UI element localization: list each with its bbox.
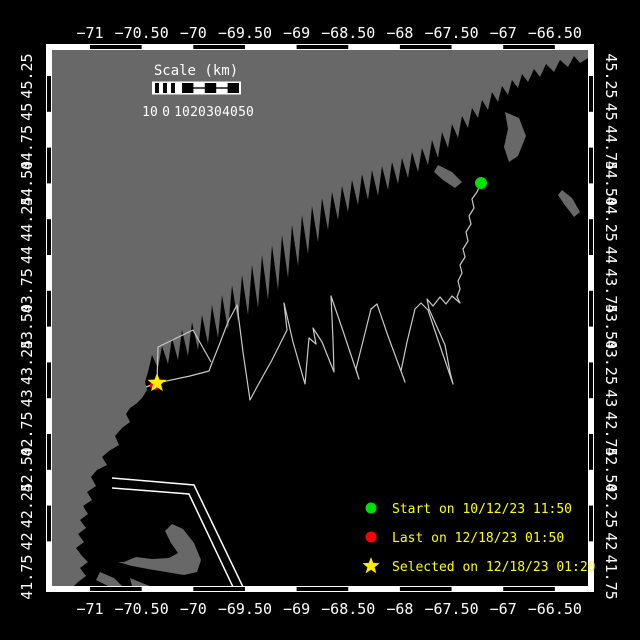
lon-tick-label-top: −68 — [386, 24, 413, 42]
lon-tick-label-bottom: −68 — [386, 600, 413, 618]
frame-dash — [589, 291, 593, 327]
start-position-marker[interactable] — [475, 177, 487, 189]
lat-tick-label-left: 44.25 — [18, 197, 36, 242]
lon-tick-label-bottom: −70.50 — [115, 600, 169, 618]
scale-bar-number: 40 — [222, 105, 238, 120]
frame-dash — [47, 506, 51, 542]
frame-dash — [193, 587, 245, 591]
lat-tick-label-left: 42 — [18, 532, 36, 550]
lat-tick-label-right: 45 — [602, 103, 620, 121]
legend-label: Selected on 12/18/23 01:20 — [392, 560, 596, 575]
lat-tick-label-right: 41.75 — [602, 555, 620, 600]
scale-bar-number: 10 — [174, 105, 190, 120]
lat-tick-label-left: 45.25 — [18, 53, 36, 98]
scale-bar-number: 20 — [190, 105, 206, 120]
lon-tick-label-top: −70 — [180, 24, 207, 42]
lon-tick-label-bottom: −66.50 — [528, 600, 582, 618]
scale-bar-hatch — [163, 83, 167, 93]
frame-dash — [47, 434, 51, 470]
lat-tick-label-right: 45.25 — [602, 53, 620, 98]
frame-dash — [47, 219, 51, 255]
frame-dash — [297, 45, 349, 49]
scale-bar-title: Scale (km) — [154, 63, 238, 79]
lon-tick-label-top: −69 — [283, 24, 310, 42]
scale-bar-number: 50 — [238, 105, 254, 120]
scale-bar-number: 0 — [162, 105, 170, 120]
lon-tick-label-bottom: −68.50 — [321, 600, 375, 618]
legend-label: Start on 10/12/23 11:50 — [392, 502, 572, 517]
lon-tick-label-top: −66.50 — [528, 24, 582, 42]
legend-label: Last on 12/18/23 01:50 — [392, 531, 564, 546]
lon-tick-label-top: −71 — [76, 24, 103, 42]
frame-dash — [47, 291, 51, 327]
lat-tick-label-right: 44 — [602, 246, 620, 264]
frame-dash — [589, 362, 593, 398]
lat-tick-label-left: 45 — [18, 103, 36, 121]
scale-bar-number: 10 — [142, 105, 158, 120]
lon-tick-label-top: −67 — [490, 24, 517, 42]
lat-tick-label-right: 42.25 — [602, 483, 620, 528]
frame-dash — [47, 148, 51, 184]
lon-tick-label-bottom: −69 — [283, 600, 310, 618]
lon-tick-label-top: −69.50 — [218, 24, 272, 42]
frame-dash — [90, 587, 142, 591]
scale-bar-hatch — [171, 83, 175, 93]
lat-tick-label-right: 44.25 — [602, 197, 620, 242]
frame-dash — [589, 76, 593, 112]
frame-dash — [47, 362, 51, 398]
lat-tick-label-left: 42.25 — [18, 483, 36, 528]
lat-tick-label-right: 43.25 — [602, 340, 620, 385]
lat-tick-label-right: 43 — [602, 389, 620, 407]
scale-bar-hatch — [155, 83, 159, 93]
frame-dash — [503, 45, 555, 49]
scale-bar-number: 30 — [206, 105, 222, 120]
frame-dash — [47, 76, 51, 112]
lat-tick-label-left: 43.25 — [18, 340, 36, 385]
tracking-map: −71−71−70.50−70.50−70−70−69.50−69.50−69−… — [0, 0, 640, 640]
frame-dash — [589, 219, 593, 255]
legend-start-icon — [366, 503, 377, 514]
lat-tick-label-left: 44 — [18, 246, 36, 264]
frame-dash — [90, 45, 142, 49]
scale-bar-midline — [182, 87, 239, 88]
frame-dash — [297, 587, 349, 591]
frame-dash — [193, 45, 245, 49]
frame-dash — [589, 148, 593, 184]
legend-item: Start on 10/12/23 11:50 — [366, 502, 573, 517]
lon-tick-label-bottom: −67.50 — [424, 600, 478, 618]
frame-dash — [589, 434, 593, 470]
lat-tick-label-left: 43 — [18, 389, 36, 407]
lon-tick-label-bottom: −71 — [76, 600, 103, 618]
frame-dash — [400, 587, 452, 591]
frame-dash — [589, 506, 593, 542]
lat-tick-label-left: 41.75 — [18, 555, 36, 600]
frame-dash — [503, 587, 555, 591]
legend-last-icon — [366, 532, 377, 543]
legend: Start on 10/12/23 11:50Last on 12/18/23 … — [362, 502, 595, 575]
lon-tick-label-bottom: −70 — [180, 600, 207, 618]
lon-tick-label-top: −68.50 — [321, 24, 375, 42]
lon-tick-label-top: −70.50 — [115, 24, 169, 42]
lon-tick-label-top: −67.50 — [424, 24, 478, 42]
frame-dash — [400, 45, 452, 49]
lat-tick-label-right: 42 — [602, 532, 620, 550]
legend-item: Selected on 12/18/23 01:20 — [362, 557, 595, 575]
lon-tick-label-bottom: −69.50 — [218, 600, 272, 618]
lon-tick-label-bottom: −67 — [490, 600, 517, 618]
legend-item: Last on 12/18/23 01:50 — [366, 531, 565, 546]
